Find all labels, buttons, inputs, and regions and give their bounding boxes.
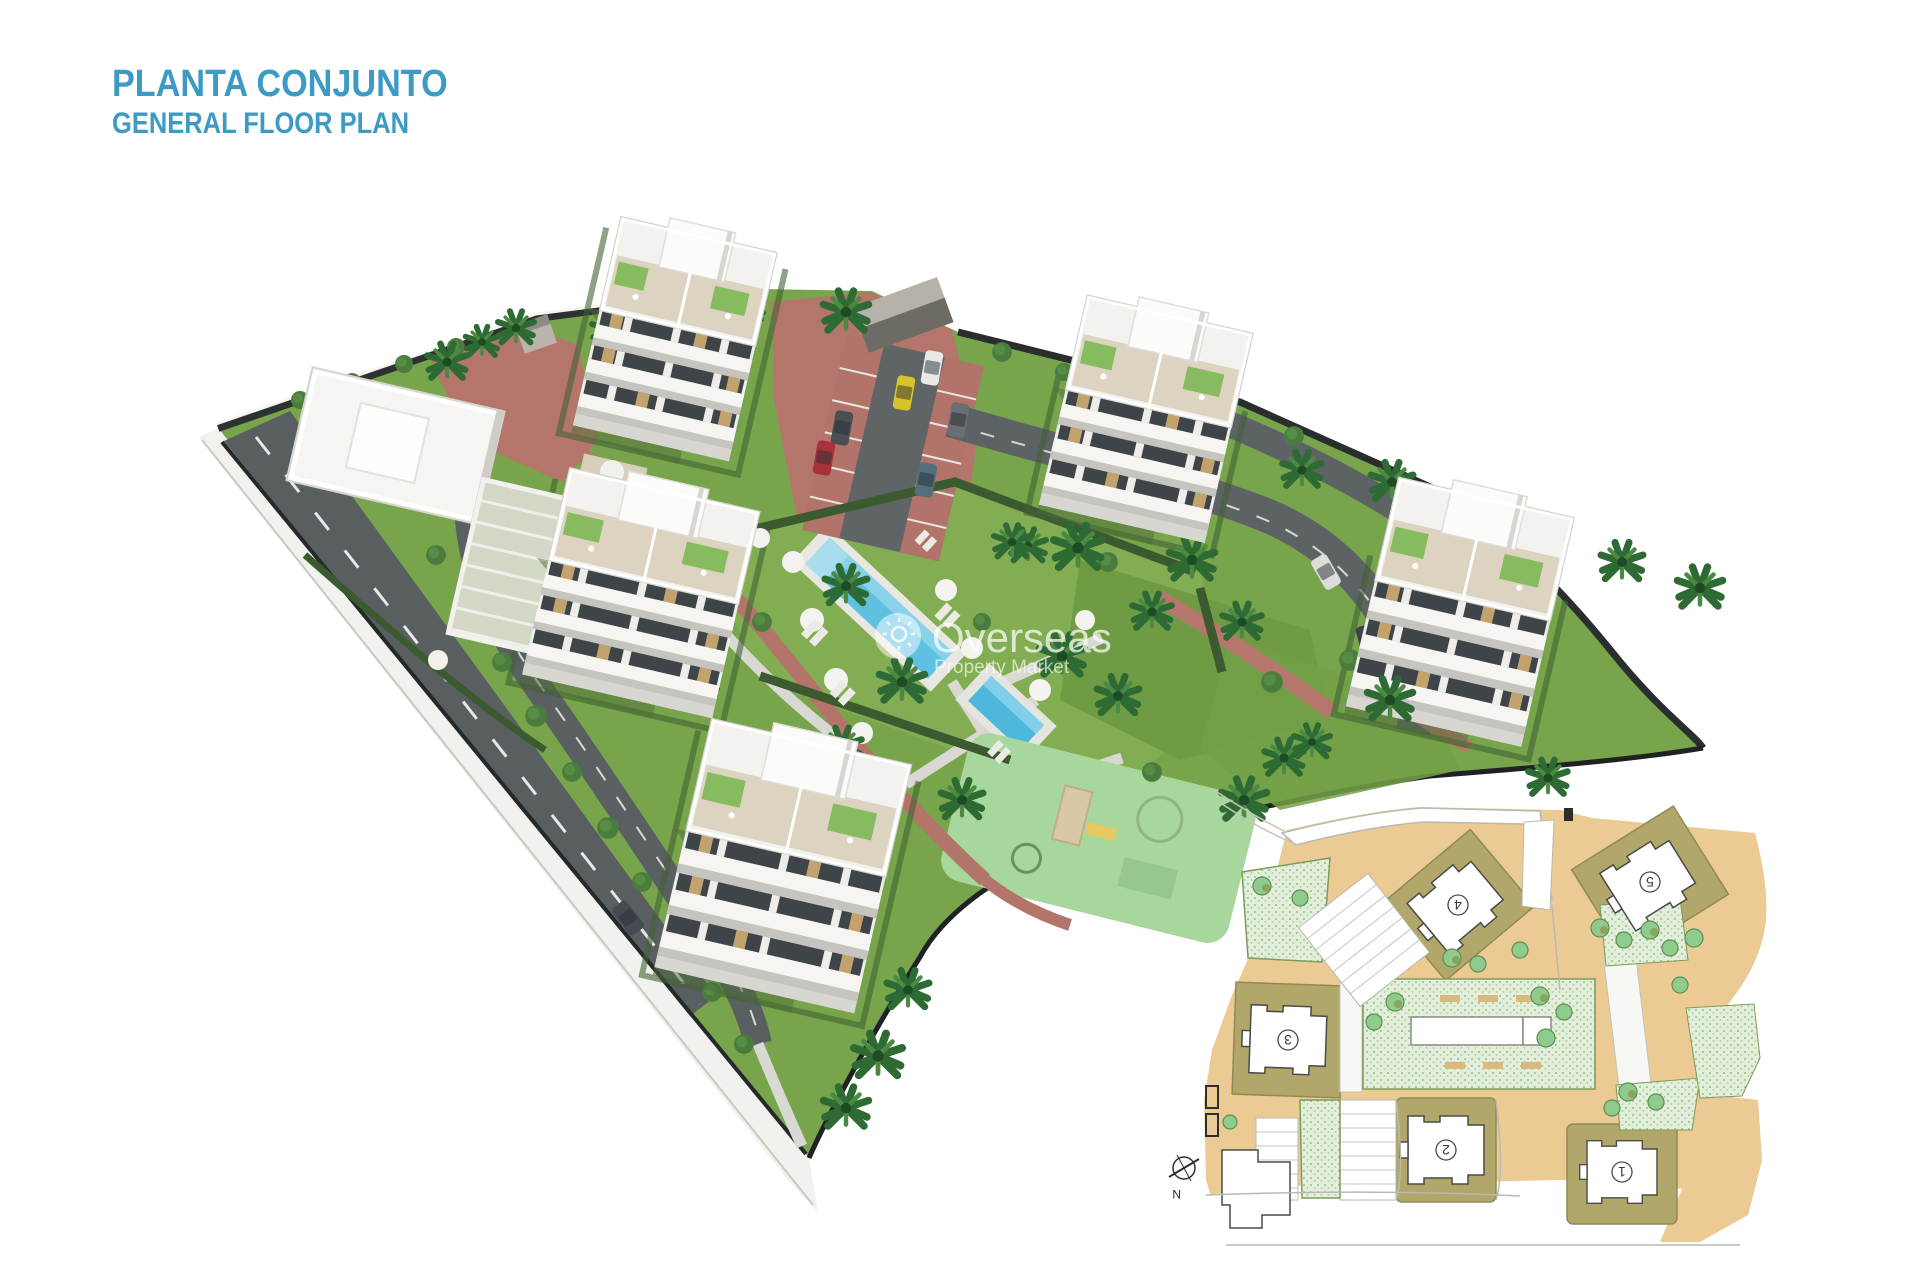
svg-text:Property Market: Property Market <box>934 657 1070 678</box>
svg-text:Overseas: Overseas <box>932 614 1112 661</box>
svg-text:1: 1 <box>1618 1164 1626 1180</box>
svg-text:3: 3 <box>1284 1032 1292 1048</box>
svg-text:2: 2 <box>1442 1142 1450 1158</box>
svg-text:N: N <box>1172 1187 1181 1201</box>
svg-text:4: 4 <box>1454 897 1462 913</box>
svg-text:5: 5 <box>1646 874 1654 890</box>
